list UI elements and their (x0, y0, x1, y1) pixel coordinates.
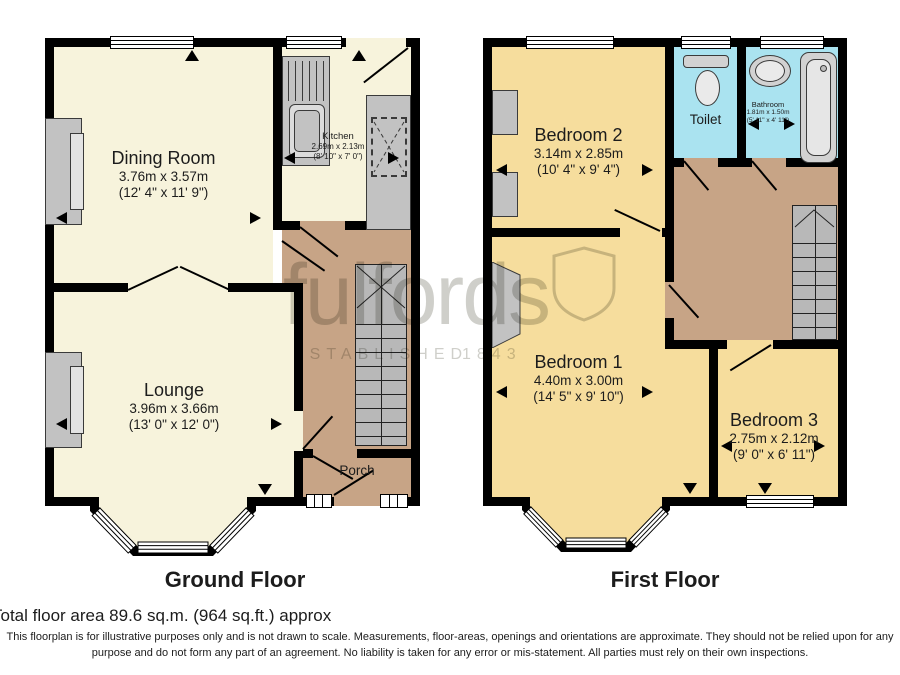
porch-sidelight-right (380, 494, 408, 508)
gf-wall-lounge-hall (294, 283, 303, 497)
room-name: Bedroom 1 (492, 352, 665, 373)
disclaimer-line2: purpose and do not form any part of an a… (92, 647, 809, 659)
bathtub-drain (820, 65, 827, 72)
room-metric: 2.75m x 2.12m (713, 431, 835, 447)
bedroom1-bay-window (520, 497, 672, 555)
dining-window (110, 36, 194, 49)
ff-wall-bed2-right (665, 47, 674, 237)
room-imperial: (5' 11" x 4' 11") (737, 117, 799, 125)
porch-label: Porch (303, 463, 411, 478)
bedroom1-dim-arrow-down (683, 483, 697, 494)
room-name: Bathroom (737, 100, 799, 109)
front-door-opening (334, 497, 380, 506)
room-metric: 3.96m x 3.66m (54, 401, 294, 417)
lounge-door-opening (294, 411, 303, 451)
kitchen-window (286, 36, 342, 49)
gf-wall-dining-kitchen (273, 47, 282, 230)
bedroom3-window (746, 495, 814, 508)
kitchen-hall-door-opening (300, 221, 345, 230)
room-metric: 3.76m x 3.57m (54, 169, 273, 185)
toilet-window (681, 36, 731, 49)
kitchen-back-door-opening (346, 38, 406, 47)
porch-sidelight-left (306, 494, 332, 508)
gf-stair-treads (356, 311, 406, 445)
disclaimer-line1: This floorplan is for illustrative purpo… (6, 631, 893, 643)
room-metric: 4.40m x 3.00m (492, 373, 665, 389)
kitchen-label: Kitchen 2.69m x 2.13m (8' 10" x 7' 0") (282, 131, 394, 161)
room-imperial: (13' 0" x 12' 0") (54, 417, 294, 433)
room-name: Porch (303, 463, 411, 478)
bedroom2-alcove-bottom (492, 172, 518, 217)
bedroom2-label: Bedroom 2 3.14m x 2.85m (10' 4" x 9' 4") (492, 125, 665, 178)
room-metric: 2.69m x 2.13m (282, 142, 394, 152)
bay-window-center (566, 538, 626, 548)
room-imperial: (12' 4" x 11' 9") (54, 185, 273, 201)
bedroom1-label: Bedroom 1 4.40m x 3.00m (14' 5" x 9' 10"… (492, 352, 665, 405)
toilet-bowl (695, 70, 720, 106)
ff-stair-chevron (792, 205, 837, 229)
dining-dim-arrow-up (185, 50, 199, 61)
room-imperial: (8' 10" x 7' 0") (282, 152, 394, 162)
room-name: Bedroom 3 (713, 410, 835, 431)
ff-wall-left (483, 38, 492, 506)
gf-stair-winder (355, 264, 407, 310)
bathroom-basin-bowl (755, 60, 785, 82)
bathroom-window (760, 36, 824, 49)
kitchen-dim-arrow-up (352, 50, 366, 61)
bedroom2-window (526, 36, 614, 49)
toilet-cistern (683, 55, 729, 68)
lounge-bay-window (88, 497, 258, 559)
room-imperial: (14' 5" x 9' 10") (492, 389, 665, 405)
room-name: Bedroom 2 (492, 125, 665, 146)
bedroom3-label: Bedroom 3 2.75m x 2.12m (9' 0" x 6' 11") (713, 410, 835, 463)
room-name: Dining Room (54, 148, 273, 169)
dining-room-label: Dining Room 3.76m x 3.57m (12' 4" x 11' … (54, 148, 273, 201)
bay-window-center (138, 542, 208, 553)
ff-wall-right (838, 38, 847, 506)
bedroom1-chimney-breast (492, 262, 522, 348)
dining-dim-arrow-right (250, 212, 261, 224)
porch-inner-door-opening (313, 449, 357, 458)
room-metric: 1.81m x 1.50m (737, 109, 799, 117)
toilet-label: Toilet (674, 112, 737, 127)
dining-dim-arrow-left (56, 212, 67, 224)
first-floor-title: First Floor (525, 567, 805, 593)
lounge-label: Lounge 3.96m x 3.66m (13' 0" x 12' 0") (54, 380, 294, 433)
room-name: Lounge (54, 380, 294, 401)
dining-lounge-opening (128, 283, 228, 292)
bathtub-inner (806, 59, 831, 156)
room-name: Toilet (674, 112, 737, 127)
bedroom1-floor-ext (665, 349, 709, 497)
bathroom-label: Bathroom 1.81m x 1.50m (5' 11" x 4' 11") (737, 100, 799, 125)
room-imperial: (10' 4" x 9' 4") (492, 162, 665, 178)
ground-floor-title: Ground Floor (95, 567, 375, 593)
room-metric: 3.14m x 2.85m (492, 146, 665, 162)
lounge-dim-arrow-down (258, 484, 272, 495)
bedroom3-dim-arrow-down (758, 483, 772, 494)
kitchen-drainer (288, 61, 325, 101)
gf-wall-right (411, 38, 420, 506)
total-area-text: Total floor area 89.6 sq.m. (964 sq.ft.)… (0, 606, 331, 626)
room-name: Kitchen (282, 131, 394, 142)
room-imperial: (9' 0" x 6' 11") (713, 447, 835, 463)
ff-stair-treads (793, 230, 836, 339)
floorplan-page: Dining Room 3.76m x 3.57m (12' 4" x 11' … (0, 0, 900, 675)
